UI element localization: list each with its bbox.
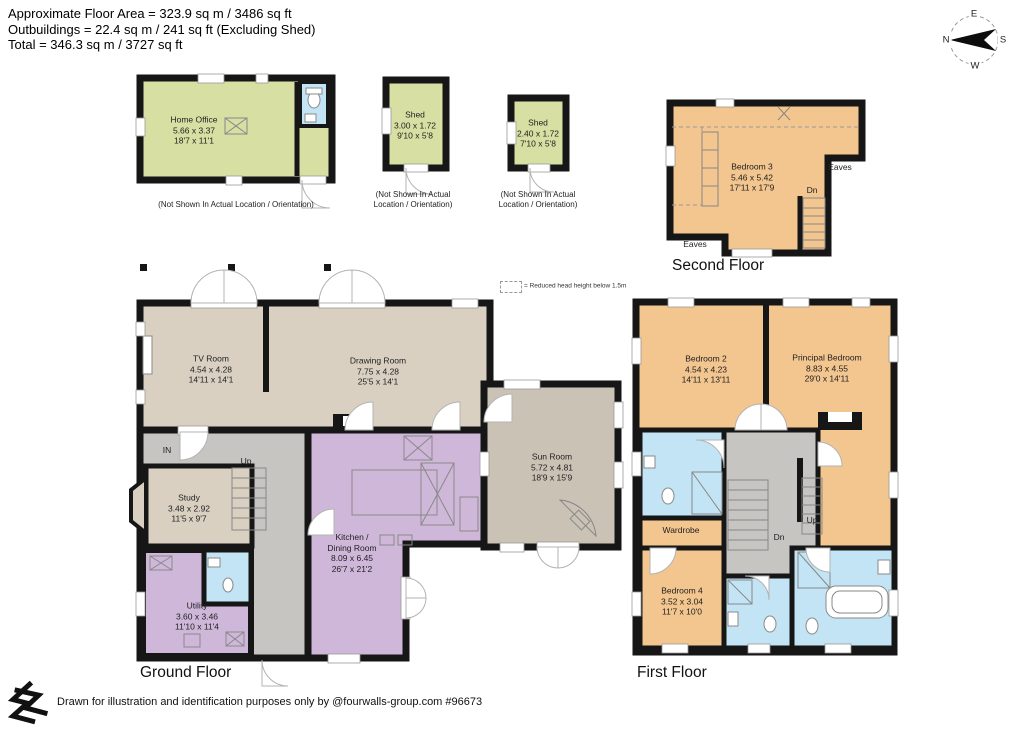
compass-west-label: W [969,61,982,72]
shed-large-label: Shed 3.00 x 1.72 9'10 x 5'8 [394,109,436,141]
room-dims-ft: 7'10 x 5'8 [517,138,559,149]
room-dims-m: 3.00 x 1.72 [394,120,436,131]
room-dims-m: 4.54 x 4.23 [682,364,731,375]
sun-room-label: Sun Room 5.72 x 4.81 18'9 x 15'9 [531,451,573,483]
area-summary-line3: Total = 346.3 sq m / 3727 sq ft [8,37,315,53]
room-dims-m: 2.40 x 1.72 [517,128,559,139]
room-dims-ft: 11'7 x 10'0 [661,606,703,617]
room-dims-m: 5.46 x 5.42 [730,172,775,183]
eaves-label-left: Eaves [683,239,707,249]
study-label: Study 3.48 x 2.92 11'5 x 9'7 [168,492,210,524]
room-name: Bedroom 4 [661,585,703,596]
room-name: Drawing Room [350,355,406,366]
shed-small-note: (Not Shown In Actual Location / Orientat… [499,190,578,210]
home-office-outbuilding [136,74,332,208]
entrance-in-label: IN [163,445,172,455]
principal-bedroom-label: Principal Bedroom 8.83 x 4.55 29'0 x 14'… [792,352,861,384]
kitchen-dining-label: Kitchen / Dining Room 8.09 x 6.45 26'7 x… [327,532,376,574]
second-floor-title: Second Floor [672,257,764,275]
room-name: Utility [175,600,219,611]
room-dims-ft: 29'0 x 14'11 [792,373,861,384]
compass-needle-icon [950,29,996,51]
note-line: (Not Shown In Actual [374,190,453,200]
area-summary-line1: Approximate Floor Area = 323.9 sq m / 34… [8,6,315,22]
room-dims-m: 8.09 x 6.45 [327,553,376,564]
room-name: TV Room [189,353,234,364]
drawing-room-label: Drawing Room 7.75 x 4.28 25'5 x 14'1 [350,355,406,387]
note-line: (Not Shown In Actual [499,190,578,200]
porch-post [324,264,331,271]
room-dims-ft: 18'9 x 15'9 [531,472,573,483]
compass-east-label: E [969,9,979,20]
wardrobe-label: Wardrobe [662,525,699,535]
fourwalls-logo-icon [6,681,48,727]
porch-post [140,264,147,271]
bedroom-4-label: Bedroom 4 3.52 x 3.04 11'7 x 10'0 [661,585,703,617]
room-name: Shed [517,117,559,128]
first-floor-dn-label: Dn [774,532,785,542]
first-floor-title: First Floor [637,664,707,682]
ground-up-label: Up [241,456,252,466]
room-dims-m: 4.54 x 4.28 [189,364,234,375]
room-name: Dining Room [327,543,376,554]
room-name: Sun Room [531,451,573,462]
compass-south-label: S [998,35,1008,46]
room-dims-ft: 26'7 x 21'2 [327,564,376,575]
eaves-label-right: Eaves [828,162,852,172]
ground-floor-title: Ground Floor [140,664,231,682]
room-dims-m: 5.72 x 4.81 [531,462,573,473]
tv-room-label: TV Room 4.54 x 4.28 14'11 x 14'1 [189,353,234,385]
note-line: Location / Orientation) [374,200,453,210]
room-name: Home Office [170,114,217,125]
room-dims-m: 5.66 x 3.37 [170,125,217,136]
floorplan-page: Approximate Floor Area = 323.9 sq m / 34… [0,0,1024,730]
room-name: Principal Bedroom [792,352,861,363]
room-dims-m: 8.83 x 4.55 [792,363,861,374]
room-dims-ft: 14'11 x 13'11 [682,374,731,385]
area-summary-line2: Outbuildings = 22.4 sq m / 241 sq ft (Ex… [8,22,315,38]
utility-label: Utility 3.60 x 3.46 11'10 x 11'4 [175,600,219,632]
compass-north-label: N [941,35,952,46]
room-dims-ft: 11'10 x 11'4 [175,621,219,632]
first-floor-up-label: Up [807,515,818,525]
study-bay-window [131,478,146,533]
home-office-note: (Not Shown In Actual Location / Orientat… [158,200,314,210]
room-name: Study [168,492,210,503]
credit-line: Drawn for illustration and identificatio… [57,696,482,708]
room-name: Bedroom 3 [730,161,775,172]
room-name: Bedroom 2 [682,353,731,364]
reduced-head-height-legend: = Reduced head height below 1.5m [524,283,626,290]
room-name: Kitchen / [327,532,376,543]
home-office-label: Home Office 5.66 x 3.37 18'7 x 11'1 [170,114,217,146]
room-name: Shed [394,109,436,120]
room-dims-m: 3.52 x 3.04 [661,596,703,607]
room-dims-ft: 17'11 x 17'9 [730,182,775,193]
room-dims-m: 7.75 x 4.28 [350,366,406,377]
room-dims-ft: 11'5 x 9'7 [168,513,210,524]
floorplan-drawing [0,0,1024,730]
shed-small-label: Shed 2.40 x 1.72 7'10 x 5'8 [517,117,559,149]
room-dims-ft: 25'5 x 14'1 [350,376,406,387]
tv-room-recess [143,336,152,374]
shed-large-note: (Not Shown In Actual Location / Orientat… [374,190,453,210]
compass-rose [950,16,998,64]
area-summary: Approximate Floor Area = 323.9 sq m / 34… [8,6,315,53]
room-dims-m: 3.48 x 2.92 [168,503,210,514]
reduced-head-height-swatch [500,281,522,293]
second-floor-dn-label: Dn [807,185,818,195]
room-dims-m: 3.60 x 3.46 [175,611,219,622]
bedroom-2-label: Bedroom 2 4.54 x 4.23 14'11 x 13'11 [682,353,731,385]
room-dims-ft: 14'11 x 14'1 [189,374,234,385]
note-line: Location / Orientation) [499,200,578,210]
room-dims-ft: 9'10 x 5'8 [394,130,436,141]
bedroom-3-label: Bedroom 3 5.46 x 5.42 17'11 x 17'9 [730,161,775,193]
room-dims-ft: 18'7 x 11'1 [170,135,217,146]
